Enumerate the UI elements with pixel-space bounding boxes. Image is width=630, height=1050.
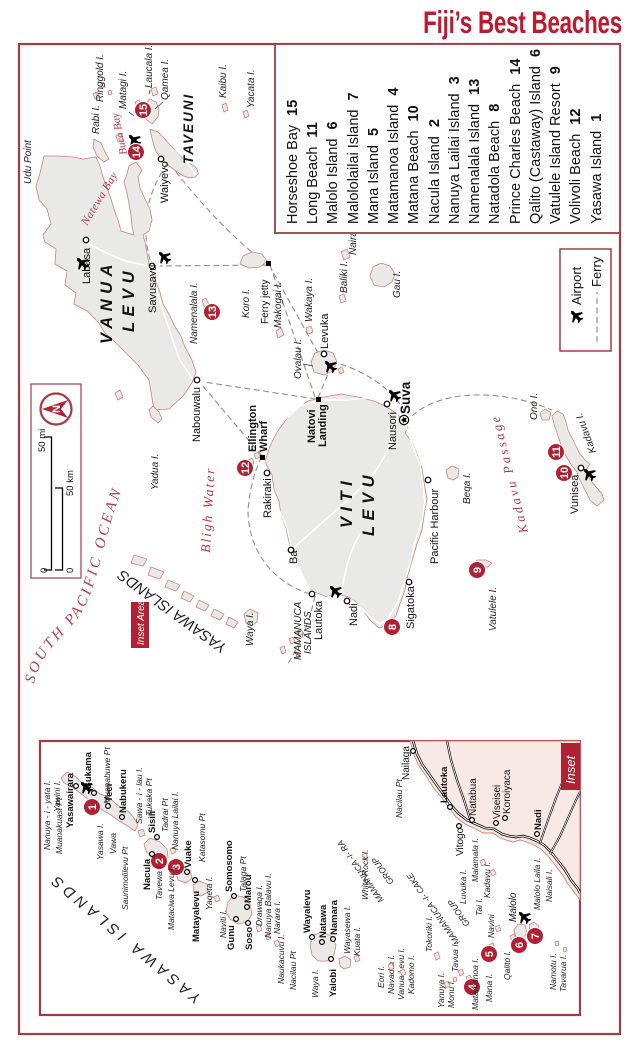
svg-text:Katasomu Pt: Katasomu Pt <box>197 813 207 862</box>
svg-text:TAVEUNI: TAVEUNI <box>181 93 196 164</box>
svg-text:12: 12 <box>240 462 252 474</box>
svg-text:Naisali I.: Naisali I. <box>544 869 554 902</box>
svg-text:Inset: Inset <box>563 754 578 784</box>
svg-text:Malamala I.: Malamala I. <box>470 838 480 882</box>
svg-text:Vatulele Island Resort 9: Vatulele Island Resort 9 <box>548 66 564 224</box>
svg-text:Beqa I.: Beqa I. <box>462 472 473 504</box>
svg-text:Nanuya Lailai Island 3: Nanuya Lailai Island 3 <box>447 76 463 224</box>
svg-text:Wharf: Wharf <box>258 421 270 453</box>
svg-text:Namotu I.: Namotu I. <box>548 953 558 990</box>
svg-text:Nacilau Pt: Nacilau Pt <box>394 779 404 818</box>
svg-text:13: 13 <box>207 306 219 318</box>
svg-text:Pacific Harbour: Pacific Harbour <box>429 488 441 564</box>
svg-text:Long Beach 11: Long Beach 11 <box>305 122 321 224</box>
svg-text:8: 8 <box>387 624 399 630</box>
svg-text:Vitogo: Vitogo <box>455 827 466 856</box>
svg-text:Natawa: Natawa <box>318 904 329 938</box>
svg-text:Navadra I.: Navadra I. <box>386 955 396 994</box>
svg-text:Muanabuwe Pt: Muanabuwe Pt <box>102 747 112 804</box>
svg-text:LEVU: LEVU <box>120 266 138 332</box>
svg-text:Malolo: Malolo <box>508 892 519 922</box>
svg-text:Bukama: Bukama <box>83 751 94 789</box>
svg-text:5: 5 <box>484 951 496 957</box>
svg-text:Ono I.: Ono I. <box>529 393 540 420</box>
svg-text:Matamanoa I.: Matamanoa I. <box>470 958 480 1010</box>
svg-text:50 km: 50 km <box>65 470 76 496</box>
svg-text:Landing: Landing <box>317 404 329 447</box>
svg-text:Mataciwa Levu I.: Mataciwa Levu I. <box>166 866 176 930</box>
svg-text:0: 0 <box>65 568 76 573</box>
svg-text:Monu I.: Monu I. <box>446 980 456 1008</box>
svg-text:Udu Point: Udu Point <box>23 139 34 184</box>
svg-text:Yanuya I.: Yanuya I. <box>436 973 446 1008</box>
svg-text:Suva: Suva <box>398 381 413 414</box>
svg-text:Lautoka: Lautoka <box>313 600 325 640</box>
svg-text:Qalito I.: Qalito I. <box>502 951 512 980</box>
svg-text:2: 2 <box>154 858 166 864</box>
svg-text:Vuake: Vuake <box>183 840 194 868</box>
svg-text:Matayalevu: Matayalevu <box>191 891 202 942</box>
svg-text:Malolo Laila I.: Malolo Laila I. <box>532 858 542 910</box>
svg-text:Navini: Navini <box>486 913 496 938</box>
svg-text:Tavewa I.: Tavewa I. <box>154 864 164 900</box>
svg-text:Yaqeta I.: Yaqeta I. <box>204 877 214 910</box>
svg-text:Qamea I.: Qamea I. <box>160 59 171 100</box>
svg-text:Nanuya - i - yata I.: Nanuya - i - yata I. <box>42 781 52 850</box>
svg-text:Tokoriki I.: Tokoriki I. <box>424 916 434 952</box>
svg-text:Qalito (Castaway) Island 6: Qalito (Castaway) Island 6 <box>528 49 544 224</box>
svg-text:Soso: Soso <box>244 927 255 950</box>
svg-text:6: 6 <box>514 942 526 948</box>
svg-text:10: 10 <box>559 467 571 479</box>
svg-text:Namenalala Island 13: Namenalala Island 13 <box>467 79 483 224</box>
svg-text:Talaga Pt: Talaga Pt <box>238 856 248 892</box>
svg-text:Nacula: Nacula <box>142 858 153 890</box>
svg-text:Ringgold I.: Ringgold I. <box>95 54 106 102</box>
svg-text:Levuka: Levuka <box>319 313 331 349</box>
svg-text:Laucala I.: Laucala I. <box>144 45 155 88</box>
svg-text:Mana I.: Mana I. <box>484 974 494 1002</box>
svg-text:Kadavu I.: Kadavu I. <box>482 862 492 898</box>
svg-text:Gau I.: Gau I. <box>392 271 403 298</box>
svg-text:Wayalevu: Wayalevu <box>302 889 313 933</box>
svg-text:Nacilau Pt: Nacilau Pt <box>288 951 298 990</box>
svg-text:Wayasewa I.: Wayasewa I. <box>342 905 352 954</box>
svg-text:1: 1 <box>87 804 99 810</box>
svg-text:0: 0 <box>39 568 50 573</box>
svg-text:Nacula Island 2: Nacula Island 2 <box>427 119 443 224</box>
svg-text:Prince Charles Beach 14: Prince Charles Beach 14 <box>508 59 524 224</box>
svg-text:Ovalau I.: Ovalau I. <box>293 339 304 379</box>
svg-text:7: 7 <box>530 933 542 939</box>
svg-text:Kaibu I.: Kaibu I. <box>218 64 229 98</box>
svg-text:Inset Area: Inset Area <box>136 599 147 645</box>
svg-text:Wakaya I.: Wakaya I. <box>304 278 315 322</box>
svg-text:Lautoka: Lautoka <box>439 766 450 803</box>
svg-text:Eori I.: Eori I. <box>376 966 386 988</box>
svg-text:Tadrai Pt: Tadrai Pt <box>160 798 170 832</box>
svg-text:Kadomo I.: Kadomo I. <box>406 955 416 994</box>
svg-text:Fiji’s Best Beaches: Fiji’s Best Beaches <box>423 4 622 40</box>
svg-text:Yalobi: Yalobi <box>328 969 339 997</box>
svg-text:Rabi I.: Rabi I. <box>91 105 102 134</box>
svg-text:9: 9 <box>472 567 484 573</box>
svg-text:Narara I.: Narara I. <box>272 901 282 934</box>
svg-text:Nanuya Lailai I.: Nanuya Lailai I. <box>170 791 180 850</box>
svg-text:Waya I.: Waya I. <box>310 969 320 998</box>
svg-text:Matagi I.: Matagi I. <box>118 71 129 109</box>
svg-text:LEVU: LEVU <box>360 470 378 536</box>
svg-text:Vawa: Vawa <box>108 833 118 854</box>
svg-text:Waya I.: Waya I. <box>245 612 256 646</box>
svg-text:Natadola Beach 8: Natadola Beach 8 <box>487 104 503 224</box>
svg-text:Namenalala I.: Namenalala I. <box>189 282 200 344</box>
svg-text:Yasawairara: Yasawairara <box>65 772 76 828</box>
svg-text:50 mi: 50 mi <box>37 429 48 452</box>
svg-text:Natabua: Natabua <box>468 778 479 816</box>
svg-text:Malololailai Island 7: Malololailai Island 7 <box>346 92 362 224</box>
svg-text:Koro I.: Koro I. <box>241 289 252 318</box>
svg-text:Nabukeru: Nabukeru <box>118 769 129 813</box>
svg-text:Namara: Namara <box>329 899 340 935</box>
svg-text:Yadua I.: Yadua I. <box>150 453 161 490</box>
svg-text:Vatulele I.: Vatulele I. <box>488 587 499 631</box>
svg-text:Koroiyaca: Koroiyaca <box>502 769 513 814</box>
svg-text:Makogai I.: Makogai I. <box>273 282 284 328</box>
svg-text:14: 14 <box>131 145 143 158</box>
svg-text:Matamanoa Island 4: Matamanoa Island 4 <box>386 88 402 224</box>
svg-text:VANUA: VANUA <box>98 259 116 344</box>
svg-text:Nadi: Nadi <box>533 809 544 830</box>
svg-text:Ba: Ba <box>288 550 300 564</box>
svg-text:Ferry jetty: Ferry jetty <box>260 280 271 324</box>
svg-text:Yasawa Island 1: Yasawa Island 1 <box>589 114 605 224</box>
svg-text:Luvuka I.: Luvuka I. <box>458 870 468 905</box>
svg-text:Saunimolilevu Pt: Saunimolilevu Pt <box>120 846 130 910</box>
svg-text:Savusavu: Savusavu <box>147 265 159 313</box>
svg-text:Muanakuasi Pt: Muanakuasi Pt <box>54 797 64 854</box>
svg-text:Mana Island 5: Mana Island 5 <box>366 128 382 224</box>
svg-text:Nausori: Nausori <box>387 412 399 450</box>
svg-text:Naukacuvu I.: Naukacuvu I. <box>276 934 286 984</box>
svg-text:Naviti I.: Naviti I. <box>218 910 228 938</box>
svg-text:Tukaka Pt: Tukaka Pt <box>144 778 154 816</box>
svg-text:Kuata I.: Kuata I. <box>352 927 362 956</box>
svg-text:Nailaga: Nailaga <box>401 746 412 780</box>
svg-text:15: 15 <box>138 104 150 116</box>
svg-text:Nadi: Nadi <box>348 603 360 626</box>
svg-text:11: 11 <box>551 446 563 458</box>
svg-text:Sigatoka: Sigatoka <box>405 585 417 629</box>
svg-text:Malolo Island 6: Malolo Island 6 <box>325 121 341 224</box>
svg-text:Rakiraki: Rakiraki <box>262 478 274 518</box>
svg-text:Airport: Airport <box>569 266 584 305</box>
svg-text:N: N <box>51 405 63 413</box>
svg-text:Ferry: Ferry <box>589 256 604 287</box>
svg-text:Tai I.: Tai I. <box>474 898 484 916</box>
svg-text:Nabouwalu: Nabouwalu <box>191 387 203 442</box>
svg-text:VITI: VITI <box>338 476 356 528</box>
svg-text:Baliki I.: Baliki I. <box>339 261 350 293</box>
svg-text:Tavarua I.: Tavarua I. <box>558 955 568 993</box>
svg-text:Sawa - i - lau I.: Sawa - i - lau I. <box>134 767 144 824</box>
svg-text:Waiyevo: Waiyevo <box>159 161 171 203</box>
svg-text:Yasawa I.: Yasawa I. <box>95 823 105 860</box>
svg-text:Somosomo: Somosomo <box>224 840 235 892</box>
svg-text:ISLANDS: ISLANDS <box>303 611 314 654</box>
svg-text:Yacata I.: Yacata I. <box>246 69 257 108</box>
